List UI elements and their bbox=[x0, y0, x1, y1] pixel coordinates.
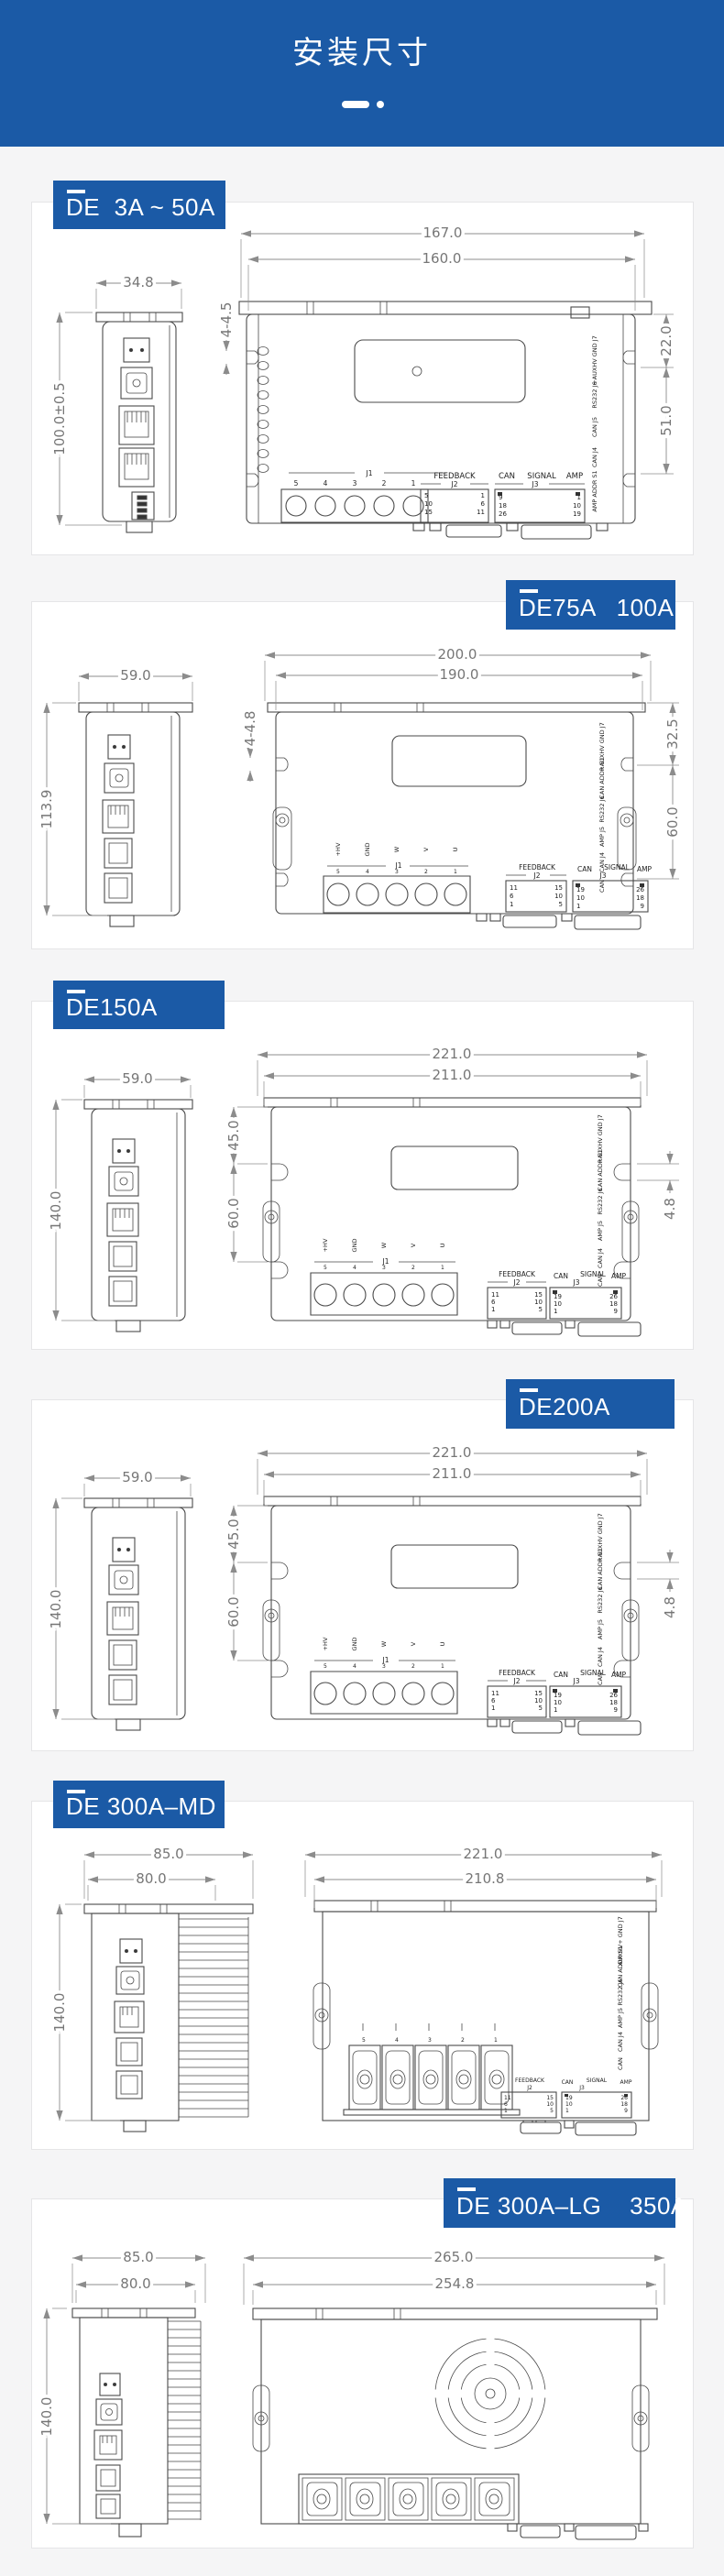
svg-text:CAN: CAN bbox=[597, 1672, 604, 1685]
svg-text:+AUXHV GND J7: +AUXHV GND J7 bbox=[591, 335, 598, 385]
dim-side-width: 59.0 bbox=[120, 667, 150, 684]
svg-text:+HV: +HV bbox=[335, 842, 342, 856]
svg-text:26: 26 bbox=[620, 2095, 628, 2101]
svg-text:1: 1 bbox=[576, 903, 580, 910]
j2-connector: FEEDBACK J2 11 6 1 15 10 5 bbox=[506, 863, 566, 912]
page-title: 安装尺寸 bbox=[0, 27, 724, 72]
right-port-labels: +AUXHV GND J7 CAN ADDR S1 RS232 J6 AMP J… bbox=[597, 1114, 604, 1287]
svg-text:1: 1 bbox=[577, 494, 581, 501]
dsub-connector bbox=[576, 2122, 636, 2135]
svg-text:9: 9 bbox=[641, 903, 644, 910]
svg-text:10: 10 bbox=[554, 893, 563, 900]
dim-front-inner: 211.0 bbox=[433, 1465, 472, 1482]
svg-text:1: 1 bbox=[441, 1265, 444, 1271]
power-terminal: +HV GND W V U J1 5 4 3 2 1 bbox=[311, 1238, 457, 1315]
section-tag-de75a-100a: DE75A 100A bbox=[506, 580, 675, 630]
front-dimensions: 221.0 211.0 45.0 60.0 4.8 bbox=[225, 1046, 679, 1262]
dim-side-height: 140.0 bbox=[48, 1590, 64, 1629]
j3-title-can: CAN bbox=[562, 2079, 574, 2086]
power-terminal: +HV GND W V U J1 5 4 3 2 1 bbox=[324, 842, 470, 913]
svg-text:GND: GND bbox=[364, 843, 371, 857]
section-tag-label: DE200A bbox=[519, 1393, 610, 1421]
svg-text:CAN J4: CAN J4 bbox=[591, 447, 598, 467]
svg-text:2: 2 bbox=[461, 2037, 465, 2044]
display-window bbox=[391, 1146, 518, 1189]
svg-text:GND: GND bbox=[351, 1638, 358, 1651]
tag-dash-icon bbox=[457, 2187, 476, 2191]
heatsink-fins bbox=[179, 1913, 248, 2121]
svg-text:10: 10 bbox=[554, 1699, 562, 1706]
svg-text:CAN ADDR S1: CAN ADDR S1 bbox=[597, 1548, 604, 1589]
svg-text:3: 3 bbox=[395, 869, 399, 875]
svg-text:V: V bbox=[410, 1243, 417, 1247]
dsub-connector bbox=[512, 1721, 562, 1733]
drawing-de150a: 59.0 140.0 +HV GND W V U J1 5 4 3 2 1 FE… bbox=[32, 1002, 695, 1351]
section-tag-label: DE75A 100A bbox=[519, 594, 674, 622]
svg-text:1: 1 bbox=[510, 901, 513, 908]
section-tag-label: DE150A bbox=[66, 993, 158, 1022]
svg-text:18: 18 bbox=[609, 1699, 618, 1706]
side-view bbox=[96, 312, 182, 532]
dim-side-height: 140.0 bbox=[38, 2397, 55, 2437]
svg-text:11: 11 bbox=[491, 1690, 499, 1697]
svg-text:6: 6 bbox=[481, 500, 486, 508]
svg-text:U: U bbox=[439, 1641, 446, 1646]
j2-title: FEEDBACK bbox=[499, 1669, 536, 1677]
j2-connector: FEEDBACK J2 5 10 15 1 6 11 bbox=[421, 472, 488, 522]
dim-front-outer: 221.0 bbox=[464, 1846, 503, 1862]
dim-front-outer: 221.0 bbox=[433, 1444, 472, 1461]
dim-right-top: 22.0 bbox=[658, 325, 675, 356]
svg-text:W: W bbox=[393, 846, 400, 852]
svg-text:RS232 J6: RS232 J6 bbox=[597, 1188, 604, 1214]
svg-text:2: 2 bbox=[424, 869, 428, 875]
j3-title-can: CAN bbox=[577, 865, 592, 873]
dim-side-inner: 80.0 bbox=[136, 1870, 166, 1887]
section-tag-de200a: DE200A bbox=[506, 1379, 675, 1429]
svg-text:5: 5 bbox=[324, 1663, 327, 1670]
j2-label: J2 bbox=[526, 2085, 532, 2091]
svg-text:10: 10 bbox=[576, 894, 585, 902]
j3-connector: CAN SIGNAL AMP J3 19 10 1 26 18 9 bbox=[550, 1270, 627, 1319]
svg-text:W: W bbox=[380, 1242, 388, 1248]
svg-text:3: 3 bbox=[428, 2037, 432, 2044]
amp-label: AMP bbox=[566, 472, 583, 481]
front-view bbox=[239, 301, 652, 539]
j2-title: FEEDBACK bbox=[499, 1270, 536, 1278]
svg-text:RS232 J6: RS232 J6 bbox=[597, 1586, 604, 1613]
j3-title-signal: SIGNAL bbox=[604, 863, 631, 871]
j2-label: J2 bbox=[513, 1278, 521, 1287]
svg-text:V: V bbox=[422, 847, 430, 851]
svg-text:4: 4 bbox=[324, 479, 328, 488]
svg-text:AMP J5: AMP J5 bbox=[597, 1619, 604, 1639]
dim-left-bottom: 60.0 bbox=[225, 1198, 242, 1228]
dim-side-width: 59.0 bbox=[122, 1469, 152, 1485]
j2-label: J2 bbox=[513, 1677, 521, 1685]
svg-text:3: 3 bbox=[353, 479, 357, 488]
dim-right: 4.8 bbox=[662, 1596, 678, 1618]
section-tag-label: DE 300A–LG 350A bbox=[456, 2192, 687, 2220]
dim-side-height: 140.0 bbox=[51, 1993, 68, 2033]
display-window bbox=[391, 1545, 518, 1588]
right-port-labels: +AUXHV GND J7 CAN ADDR S1 RS232 J6 AMP J… bbox=[598, 722, 606, 893]
title-underline-dot-icon bbox=[377, 101, 384, 108]
dim-right-top: 32.5 bbox=[664, 718, 681, 749]
svg-text:3: 3 bbox=[382, 1265, 386, 1271]
svg-text:6: 6 bbox=[504, 2101, 508, 2108]
svg-text:1: 1 bbox=[454, 869, 457, 875]
j3-label: J3 bbox=[573, 1677, 580, 1685]
drawing-de-3a-50a: 34.8 100.0±0.5 J1 5 4 3 2 1 FEEDBACK bbox=[32, 203, 695, 556]
j3-connector: CAN SIGNAL AMP J3 9 18 26 1 10 19 bbox=[495, 472, 585, 522]
svg-text:1: 1 bbox=[494, 2037, 498, 2044]
svg-text:2: 2 bbox=[411, 1663, 415, 1670]
front-view bbox=[253, 2308, 657, 2539]
svg-text:4: 4 bbox=[395, 2037, 399, 2044]
section-tag-de300a-md: DE 300A–MD bbox=[53, 1781, 225, 1828]
dim-left-top: 45.0 bbox=[225, 1120, 242, 1150]
front-view bbox=[268, 703, 645, 929]
drawing-de75a-100a: 59.0 113.9 +HV GND W V U J1 5 4 3 2 1 FE… bbox=[32, 602, 695, 950]
svg-text:4: 4 bbox=[353, 1265, 357, 1271]
j3-label: J3 bbox=[532, 480, 539, 488]
front-dimensions: 200.0 190.0 4-4.8 32.5 60.0 bbox=[242, 646, 681, 879]
svg-text:10: 10 bbox=[534, 1697, 543, 1705]
dim-side-height: 113.9 bbox=[38, 790, 55, 829]
front-dimensions: 221.0 210.8 bbox=[305, 1846, 662, 1908]
power-terminal-blocks bbox=[299, 2474, 519, 2524]
dim-right-bottom: 51.0 bbox=[658, 405, 675, 435]
dim-holes: 4-4.5 bbox=[218, 302, 235, 338]
svg-text:19: 19 bbox=[554, 1293, 562, 1300]
svg-text:10: 10 bbox=[573, 502, 581, 510]
dim-front-outer: 221.0 bbox=[433, 1046, 472, 1062]
dim-front-outer: 167.0 bbox=[423, 225, 463, 241]
svg-text:18: 18 bbox=[636, 894, 644, 902]
section-de-3a-50a: 34.8 100.0±0.5 J1 5 4 3 2 1 FEEDBACK bbox=[31, 202, 694, 555]
dim-left-bottom: 60.0 bbox=[225, 1596, 242, 1627]
j2-connector: FEEDBACK J2 11 6 1 15 10 5 bbox=[488, 1669, 546, 1717]
svg-text:26: 26 bbox=[609, 1293, 618, 1300]
amp-label: AMP bbox=[620, 2079, 632, 2086]
svg-text:26: 26 bbox=[636, 886, 644, 893]
display-window bbox=[355, 340, 525, 402]
j2-connector: FEEDBACK J2 11 6 1 15 10 5 bbox=[488, 1270, 546, 1319]
svg-text:15: 15 bbox=[534, 1690, 543, 1697]
svg-text:9: 9 bbox=[624, 2108, 628, 2114]
dim-side-height: 100.0±0.5 bbox=[51, 382, 68, 455]
svg-text:1: 1 bbox=[554, 1308, 557, 1315]
svg-text:19: 19 bbox=[554, 1692, 562, 1699]
svg-text:1: 1 bbox=[441, 1663, 444, 1670]
drawing-de300a-md: 85.0 80.0 140.0 5 4 3 2 1 FEEDBACK J2 bbox=[32, 1802, 695, 2151]
j3-label: J3 bbox=[578, 2085, 585, 2091]
front-dimensions: 221.0 211.0 45.0 60.0 4.8 bbox=[225, 1444, 679, 1661]
j2-title: FEEDBACK bbox=[515, 2077, 545, 2084]
dim-front-inner: 211.0 bbox=[433, 1067, 472, 1083]
svg-text:3: 3 bbox=[382, 1663, 386, 1670]
svg-text:5: 5 bbox=[294, 479, 299, 488]
j2-label: J2 bbox=[533, 871, 541, 880]
svg-text:CAN J4: CAN J4 bbox=[597, 1647, 604, 1667]
front-view bbox=[313, 1901, 658, 2135]
tag-dash-icon bbox=[520, 1388, 538, 1392]
svg-text:CAN: CAN bbox=[598, 880, 606, 893]
j3-title-can: CAN bbox=[554, 1671, 568, 1679]
svg-text:5: 5 bbox=[324, 1265, 327, 1271]
svg-text:6: 6 bbox=[491, 1299, 496, 1306]
svg-text:26: 26 bbox=[499, 510, 507, 518]
dim-side-height: 140.0 bbox=[48, 1191, 64, 1231]
svg-text:2: 2 bbox=[382, 479, 387, 488]
svg-text:2: 2 bbox=[411, 1265, 415, 1271]
svg-text:CAN ADDR S1: CAN ADDR S1 bbox=[598, 757, 606, 798]
section-de300a-lg: 85.0 80.0 140.0 bbox=[31, 2198, 694, 2549]
dim-front-inner: 190.0 bbox=[440, 666, 479, 683]
dim-side-outer: 85.0 bbox=[123, 2249, 153, 2265]
svg-text:RS232 J6: RS232 J6 bbox=[617, 1979, 624, 2005]
dim-front-inner: 254.8 bbox=[435, 2275, 475, 2292]
svg-text:1: 1 bbox=[554, 1706, 557, 1714]
display-window bbox=[392, 736, 526, 786]
dsub-connector bbox=[446, 525, 501, 537]
section-de75a-100a: 59.0 113.9 +HV GND W V U J1 5 4 3 2 1 FE… bbox=[31, 601, 694, 949]
svg-text:10: 10 bbox=[565, 2101, 573, 2108]
front-dimensions: 167.0 160.0 4-4.5 22.0 51.0 bbox=[218, 225, 675, 474]
svg-text:15: 15 bbox=[554, 884, 563, 892]
section-tag-label: DE 300A–MD bbox=[66, 1792, 216, 1821]
svg-text:U: U bbox=[452, 847, 459, 851]
svg-text:AMP J5: AMP J5 bbox=[597, 1221, 604, 1241]
dim-front-outer: 200.0 bbox=[438, 646, 477, 663]
tag-dash-icon bbox=[520, 589, 538, 593]
svg-text:1: 1 bbox=[504, 2108, 508, 2114]
svg-text:5: 5 bbox=[362, 2037, 366, 2044]
section-tag-de150a: DE150A bbox=[53, 981, 225, 1029]
svg-text:5: 5 bbox=[539, 1306, 543, 1313]
svg-text:10: 10 bbox=[534, 1299, 543, 1306]
section-tag-label: DE 3A ~ 50A bbox=[66, 193, 215, 222]
dim-side-width: 34.8 bbox=[123, 274, 153, 290]
drawing-de200a: 59.0 140.0 +HV GND W V U J1 5 4 3 2 1 FE… bbox=[32, 1400, 695, 1752]
svg-text:15: 15 bbox=[424, 509, 433, 516]
svg-text:+HV: +HV bbox=[322, 1637, 329, 1650]
dsub-connector bbox=[576, 2526, 636, 2539]
svg-text:10: 10 bbox=[554, 1300, 562, 1308]
svg-text:RS232 J6: RS232 J6 bbox=[591, 381, 598, 408]
heatsink-fins bbox=[168, 2318, 201, 2524]
dsub-connector bbox=[578, 1721, 641, 1735]
svg-text:9: 9 bbox=[499, 494, 502, 501]
svg-text:9: 9 bbox=[614, 1706, 618, 1714]
svg-text:6: 6 bbox=[491, 1697, 496, 1705]
dim-front-inner: 160.0 bbox=[422, 250, 462, 267]
dim-side-inner: 80.0 bbox=[120, 2275, 150, 2292]
svg-text:11: 11 bbox=[504, 2095, 511, 2101]
svg-text:19: 19 bbox=[565, 2095, 573, 2101]
dim-front-inner: 210.8 bbox=[466, 1870, 505, 1887]
dim-right: 4.8 bbox=[662, 1198, 678, 1220]
j3-connector: CAN SIGNAL AMP J3 19 10 1 26 18 9 bbox=[573, 863, 653, 912]
dim-holes: 4-4.8 bbox=[242, 711, 258, 747]
svg-text:AMP J5: AMP J5 bbox=[598, 827, 606, 847]
cooling-fan bbox=[430, 2333, 551, 2454]
section-de150a: 59.0 140.0 +HV GND W V U J1 5 4 3 2 1 FE… bbox=[31, 1001, 694, 1350]
svg-text:5: 5 bbox=[539, 1705, 543, 1712]
svg-text:1: 1 bbox=[491, 1705, 495, 1712]
j3-title-can: CAN bbox=[499, 472, 515, 481]
j3-title-signal: SIGNAL bbox=[587, 2077, 608, 2084]
svg-text:V: V bbox=[410, 1641, 417, 1646]
svg-text:18: 18 bbox=[499, 502, 507, 510]
amp-label: AMP bbox=[637, 865, 653, 873]
svg-text:AMP ADDR S1: AMP ADDR S1 bbox=[591, 470, 598, 511]
side-view bbox=[84, 1498, 192, 1730]
svg-text:11: 11 bbox=[510, 884, 518, 892]
svg-text:U: U bbox=[439, 1243, 446, 1247]
svg-text:1: 1 bbox=[565, 2108, 569, 2114]
title-underline-dash-icon bbox=[342, 101, 369, 108]
svg-text:15: 15 bbox=[534, 1291, 543, 1299]
svg-text:10: 10 bbox=[546, 2101, 554, 2108]
j3-label: J3 bbox=[573, 1278, 580, 1287]
right-port-labels: +AUXHV GND J7 RS232 J6 CAN J5 CAN J4 AMP… bbox=[591, 335, 598, 511]
svg-text:5: 5 bbox=[550, 2108, 554, 2114]
j2-connector: FEEDBACK J2 11 6 1 15 10 5 bbox=[501, 2077, 556, 2118]
side-view bbox=[79, 703, 192, 926]
amp-label: AMP bbox=[611, 1671, 627, 1679]
svg-text:+HV: +HV bbox=[322, 1238, 329, 1252]
j3-connector: CAN SIGNAL AMP J3 19 10 1 26 18 9 bbox=[562, 2077, 632, 2118]
svg-text:CAN J4: CAN J4 bbox=[598, 852, 606, 872]
svg-text:15: 15 bbox=[546, 2095, 554, 2101]
j1-terminal: J1 5 4 3 2 1 bbox=[281, 469, 446, 522]
svg-text:11: 11 bbox=[491, 1291, 499, 1299]
side-dimensions: 85.0 80.0 140.0 bbox=[38, 2249, 205, 2524]
svg-text:19: 19 bbox=[573, 510, 581, 518]
svg-text:CAN J4: CAN J4 bbox=[597, 1248, 604, 1268]
svg-text:CAN: CAN bbox=[597, 1274, 604, 1287]
svg-text:19: 19 bbox=[576, 886, 585, 893]
dsub-connector bbox=[578, 1322, 641, 1336]
j3-title-can: CAN bbox=[554, 1272, 568, 1280]
dsub-connector bbox=[512, 1322, 562, 1334]
side-view bbox=[72, 2308, 201, 2537]
dim-side-outer: 85.0 bbox=[153, 1846, 183, 1862]
svg-text:CAN J5: CAN J5 bbox=[591, 417, 598, 437]
dim-front-outer: 265.0 bbox=[434, 2249, 474, 2265]
side-dimensions: 34.8 100.0±0.5 bbox=[51, 274, 181, 525]
dsub-connector bbox=[521, 525, 591, 539]
j2-title: FEEDBACK bbox=[519, 863, 556, 871]
right-port-labels: AUXHV+ GND J7 CAN ADDR S1 RS232 J6 AMP J… bbox=[617, 1916, 624, 2070]
j2-label: J2 bbox=[451, 480, 458, 488]
svg-text:6: 6 bbox=[510, 893, 514, 900]
svg-text:1: 1 bbox=[491, 1306, 495, 1313]
svg-text:9: 9 bbox=[614, 1308, 618, 1315]
dsub-connector bbox=[521, 2526, 560, 2538]
dsub-connector bbox=[575, 915, 641, 929]
dsub-connector bbox=[503, 915, 556, 927]
svg-text:4: 4 bbox=[366, 869, 369, 875]
svg-text:RS232 J6: RS232 J6 bbox=[598, 795, 606, 822]
svg-text:26: 26 bbox=[609, 1692, 618, 1699]
dim-right-bottom: 60.0 bbox=[664, 806, 681, 837]
front-dimensions: 265.0 254.8 bbox=[244, 2249, 664, 2305]
svg-text:18: 18 bbox=[609, 1300, 618, 1308]
section-tag-de-3a-50a: DE 3A ~ 50A bbox=[53, 181, 225, 229]
side-dimensions: 85.0 80.0 140.0 bbox=[51, 1846, 253, 2121]
right-port-labels: +AUXHV GND J7 CAN ADDR S1 RS232 J6 AMP J… bbox=[597, 1513, 604, 1685]
svg-text:1: 1 bbox=[411, 479, 416, 488]
dim-side-width: 59.0 bbox=[122, 1070, 152, 1087]
svg-text:5: 5 bbox=[336, 869, 340, 875]
svg-text:5: 5 bbox=[559, 901, 563, 908]
svg-text:W: W bbox=[380, 1640, 388, 1647]
page-header: 安装尺寸 bbox=[0, 0, 724, 147]
svg-text:CAN J4: CAN J4 bbox=[617, 2032, 624, 2052]
svg-text:5: 5 bbox=[424, 492, 428, 499]
section-de300a-md: 85.0 80.0 140.0 5 4 3 2 1 FEEDBACK J2 bbox=[31, 1801, 694, 2150]
svg-text:11: 11 bbox=[477, 509, 485, 516]
svg-text:18: 18 bbox=[620, 2101, 628, 2108]
svg-text:10: 10 bbox=[424, 500, 433, 508]
svg-text:AMP J5: AMP J5 bbox=[617, 2008, 624, 2028]
j1-label: J1 bbox=[366, 469, 373, 477]
power-terminal-blocks: 5 4 3 2 1 bbox=[344, 2023, 520, 2115]
drawing-de300a-lg: 85.0 80.0 140.0 bbox=[32, 2199, 695, 2549]
svg-text:CAN: CAN bbox=[617, 2057, 624, 2070]
side-view bbox=[84, 1100, 192, 1332]
section-tag-de300a-lg: DE 300A–LG 350A bbox=[444, 2178, 675, 2228]
power-terminal: +HV GND W V U J1 5 4 3 2 1 bbox=[311, 1637, 457, 1714]
svg-text:CAN ADDR S1: CAN ADDR S1 bbox=[597, 1149, 604, 1190]
svg-text:4: 4 bbox=[353, 1663, 357, 1670]
svg-text:1: 1 bbox=[481, 492, 485, 499]
dsub-connector bbox=[521, 2122, 561, 2133]
section-de200a: 59.0 140.0 +HV GND W V U J1 5 4 3 2 1 FE… bbox=[31, 1399, 694, 1751]
svg-text:GND: GND bbox=[351, 1239, 358, 1253]
side-view bbox=[84, 1904, 253, 2132]
dim-left-top: 45.0 bbox=[225, 1518, 242, 1549]
amp-label: AMP bbox=[611, 1272, 627, 1280]
j3-connector: CAN SIGNAL AMP J3 19 10 1 26 18 9 bbox=[550, 1669, 627, 1717]
